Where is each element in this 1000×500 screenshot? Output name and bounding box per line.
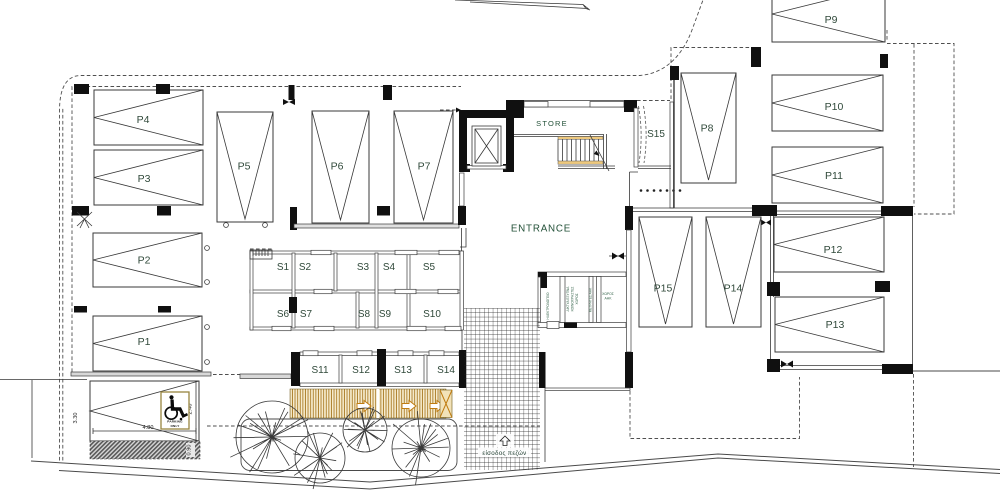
svg-text:S7: S7 [300, 309, 313, 320]
svg-text:P2: P2 [138, 255, 151, 267]
svg-text:P3: P3 [138, 173, 151, 185]
svg-text:ONLY: ONLY [170, 424, 180, 428]
svg-text:S4: S4 [383, 262, 396, 273]
svg-text:S12: S12 [352, 365, 370, 376]
svg-text:P8: P8 [701, 123, 714, 135]
svg-text:4.80: 4.80 [143, 425, 154, 431]
svg-text:ENTRANCE: ENTRANCE [511, 224, 571, 235]
svg-text:P10: P10 [825, 101, 844, 113]
svg-text:P1: P1 [138, 336, 151, 348]
svg-text:S13: S13 [394, 365, 412, 376]
svg-text:ΚΟΙΝΟΧΡΗΣΤΕΣ: ΚΟΙΝΟΧΡΗΣΤΕΣ [571, 287, 575, 312]
svg-text:S5: S5 [423, 262, 436, 273]
svg-text:P14: P14 [724, 283, 743, 295]
svg-text:ΑΗΚ: ΑΗΚ [605, 297, 613, 301]
svg-text:ΧΩΡΟΣ: ΧΩΡΟΣ [575, 293, 579, 304]
svg-text:STORE: STORE [536, 119, 568, 128]
svg-text:P5: P5 [238, 161, 251, 173]
svg-text:S8: S8 [358, 309, 371, 320]
svg-text:S2: S2 [299, 262, 312, 273]
svg-text:S9: S9 [379, 309, 392, 320]
svg-text:ΜΕΤΡΗΤΕΣ ΑΗΚ: ΜΕΤΡΗΤΕΣ ΑΗΚ [589, 287, 593, 312]
svg-text:P12: P12 [824, 244, 843, 256]
svg-text:ΗΛΕΚΤΡΟΛΟΓΕΙΟ: ΗΛΕΚΤΡΟΛΟΓΕΙΟ [546, 292, 550, 319]
svg-text:ΧΩΡΟΣ: ΧΩΡΟΣ [602, 292, 614, 296]
svg-text:S11: S11 [311, 365, 328, 376]
svg-text:P9: P9 [825, 14, 838, 26]
svg-text:P7: P7 [418, 161, 431, 173]
svg-text:S10: S10 [423, 309, 441, 320]
svg-text:P6: P6 [331, 161, 344, 173]
svg-text:P13: P13 [826, 319, 845, 331]
svg-text:S6: S6 [277, 309, 290, 320]
svg-text:P11: P11 [825, 170, 843, 182]
svg-text:P15: P15 [654, 283, 673, 295]
svg-text:0.90: 0.90 [187, 445, 193, 456]
svg-text:S1: S1 [277, 262, 290, 273]
svg-text:S3: S3 [357, 262, 370, 273]
svg-text:S14: S14 [437, 365, 455, 376]
svg-text:είσοδος πεζών: είσοδος πεζών [482, 450, 526, 457]
svg-text:S15: S15 [647, 129, 665, 140]
svg-text:3.30: 3.30 [73, 413, 79, 424]
svg-text:ΔΙΚΤΥΑ ΕΞΥΠΝΑ: ΔΙΚΤΥΑ ΕΞΥΠΝΑ [566, 286, 570, 312]
svg-text:P4: P4 [137, 114, 150, 126]
